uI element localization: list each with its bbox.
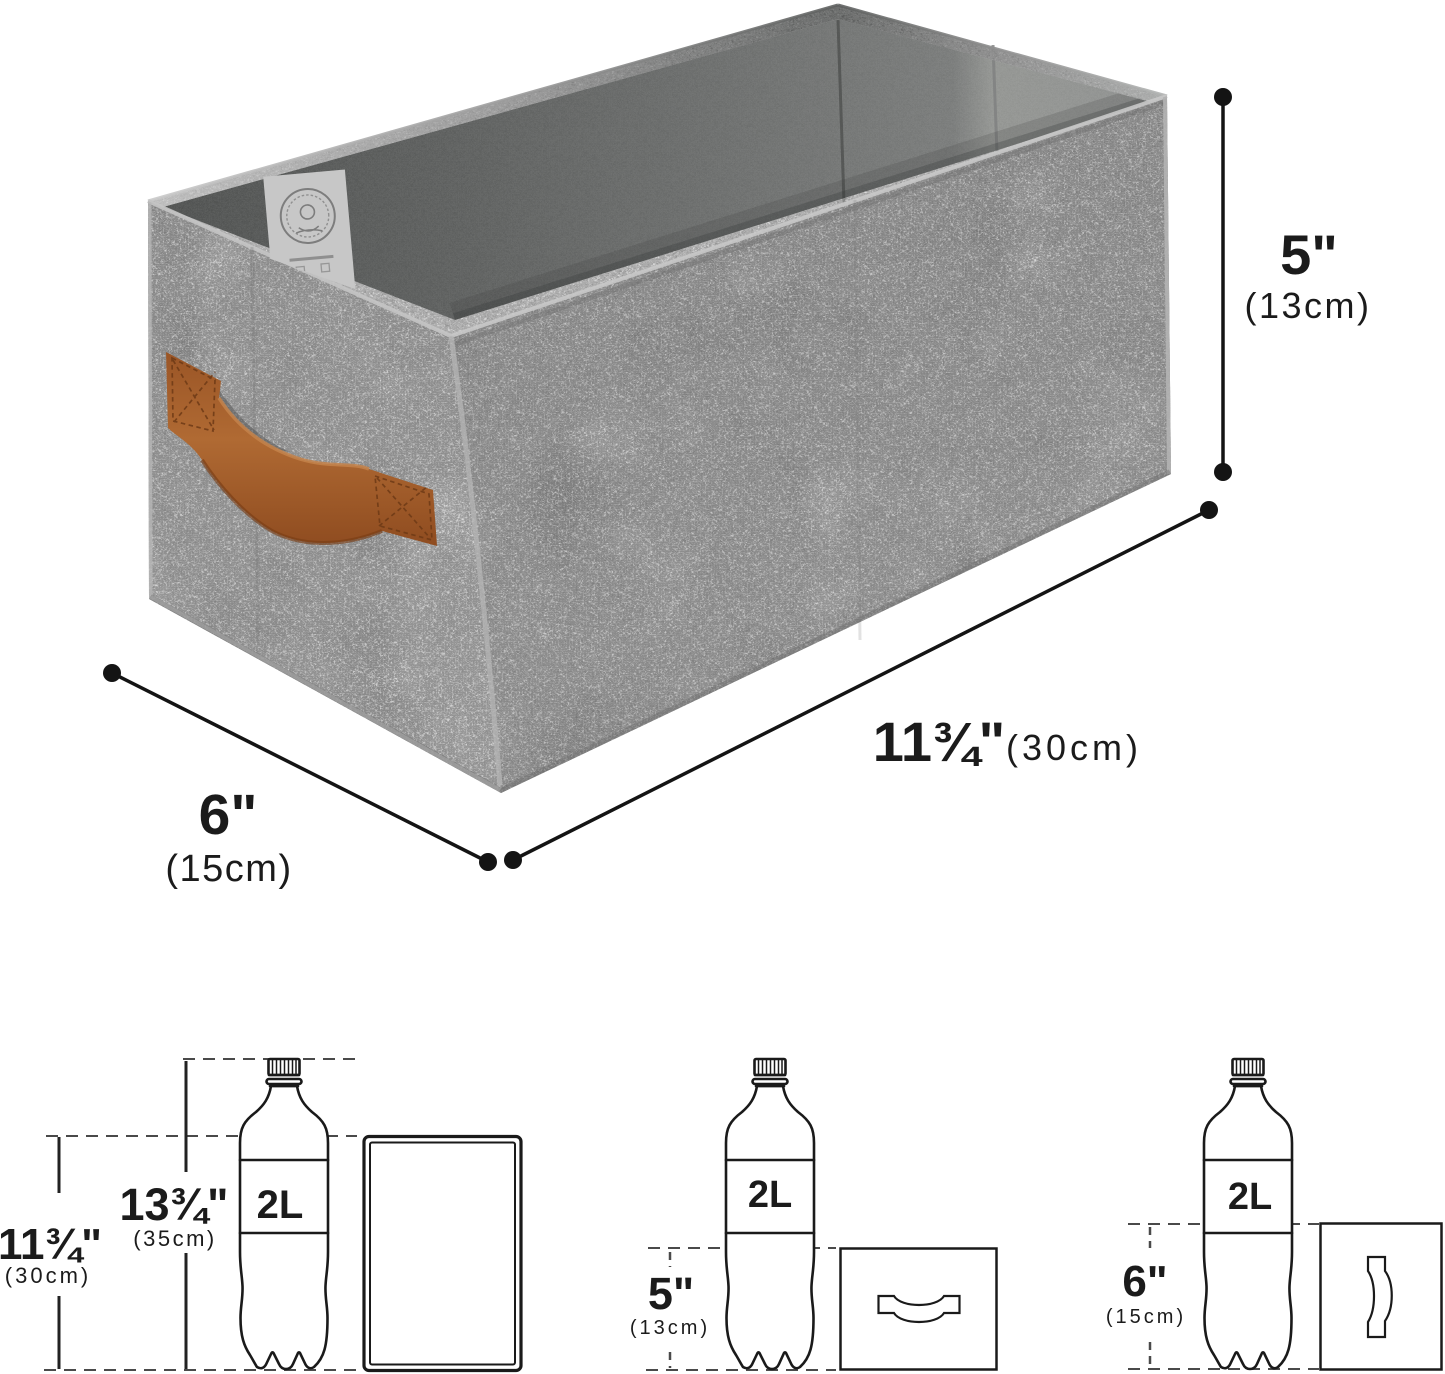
svg-text:6": 6" [1122, 1257, 1167, 1306]
svg-text:5": 5" [648, 1268, 694, 1319]
svg-text:(30cm): (30cm) [5, 1263, 91, 1288]
svg-text:2L: 2L [1228, 1176, 1272, 1218]
svg-text:11¾": 11¾" [0, 1220, 102, 1269]
svg-text:11¾": 11¾" [873, 710, 1005, 773]
svg-text:6": 6" [199, 783, 258, 847]
svg-text:(30cm): (30cm) [1006, 727, 1142, 768]
svg-text:13¾": 13¾" [120, 1179, 229, 1230]
svg-text:2L: 2L [257, 1183, 304, 1227]
svg-text:(35cm): (35cm) [133, 1226, 216, 1251]
svg-text:(15cm): (15cm) [165, 848, 292, 890]
svg-text:5": 5" [1280, 223, 1338, 286]
svg-text:(15cm): (15cm) [1106, 1306, 1186, 1328]
svg-text:(13cm): (13cm) [1244, 285, 1371, 326]
svg-text:(13cm): (13cm) [630, 1317, 710, 1339]
svg-text:2L: 2L [748, 1174, 792, 1216]
